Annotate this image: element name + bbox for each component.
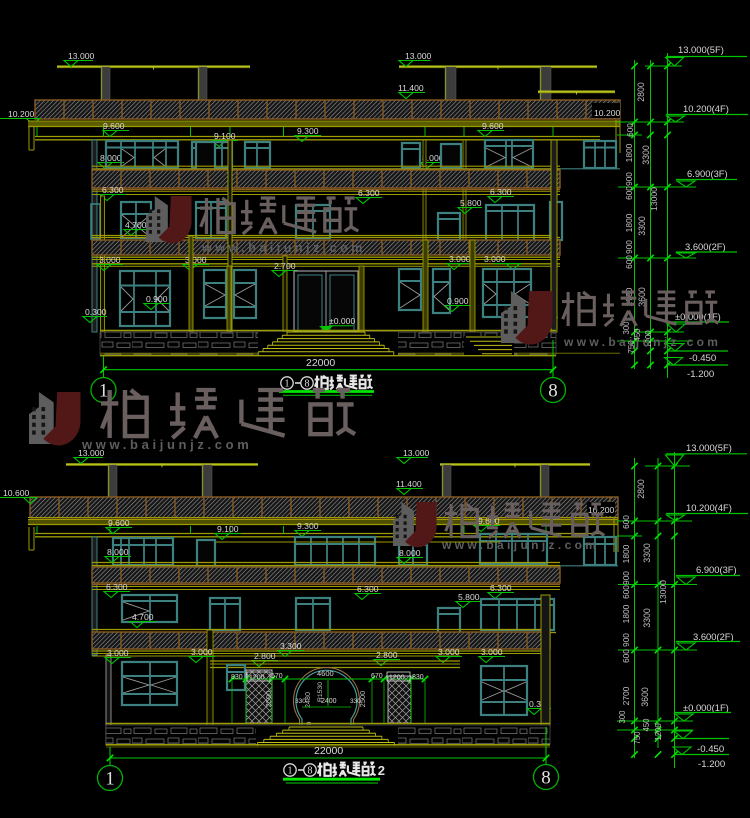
svg-text:6.900(3F): 6.900(3F) — [687, 168, 728, 179]
svg-text:11.400: 11.400 — [396, 479, 422, 489]
svg-text:0.900: 0.900 — [146, 294, 168, 304]
svg-text:9.600: 9.600 — [103, 121, 125, 131]
svg-text:0.900: 0.900 — [447, 296, 469, 306]
svg-text:±0.000: ±0.000 — [329, 316, 355, 326]
svg-text:1800: 1800 — [624, 213, 634, 232]
svg-text:600: 600 — [622, 515, 631, 529]
svg-text:8: 8 — [548, 381, 558, 402]
svg-text:2.800: 2.800 — [254, 651, 276, 661]
svg-text:13.000: 13.000 — [405, 51, 432, 61]
svg-text:2800: 2800 — [636, 479, 646, 499]
svg-text:330: 330 — [295, 698, 306, 705]
svg-text:10.200: 10.200 — [594, 108, 621, 118]
svg-text:3300: 3300 — [642, 543, 652, 563]
svg-text:9.600: 9.600 — [108, 518, 130, 528]
svg-text:4.700: 4.700 — [132, 612, 154, 622]
svg-text:-1.200: -1.200 — [687, 369, 714, 380]
svg-text:3.600(2F): 3.600(2F) — [685, 241, 726, 252]
svg-text:9.300: 9.300 — [297, 521, 319, 531]
svg-text:6.300: 6.300 — [490, 187, 512, 197]
svg-text:1200: 1200 — [389, 675, 405, 682]
svg-text:900: 900 — [622, 633, 631, 647]
svg-text:10.200(4F): 10.200(4F) — [683, 103, 729, 114]
svg-text:13.000: 13.000 — [403, 448, 430, 458]
svg-text:2700: 2700 — [621, 686, 631, 705]
svg-text:1200: 1200 — [249, 675, 265, 682]
svg-text:8: 8 — [305, 379, 310, 390]
svg-text:450: 450 — [642, 718, 651, 732]
svg-text:8: 8 — [308, 766, 313, 777]
svg-text:600: 600 — [626, 123, 635, 137]
svg-text:900: 900 — [625, 240, 634, 254]
svg-text:10.200: 10.200 — [8, 109, 35, 119]
svg-text:2400: 2400 — [321, 698, 337, 705]
svg-text:2800: 2800 — [636, 82, 646, 102]
svg-text:2500: 2500 — [264, 691, 273, 708]
svg-text:3.000: 3.000 — [484, 254, 506, 264]
svg-text:6.300: 6.300 — [490, 583, 512, 593]
svg-text:2: 2 — [378, 763, 385, 778]
svg-text:6.300: 6.300 — [357, 584, 379, 594]
svg-text:3.000: 3.000 — [107, 648, 129, 658]
svg-text:900: 900 — [625, 172, 634, 186]
svg-text:600: 600 — [622, 649, 631, 663]
svg-text:1: 1 — [105, 769, 115, 790]
svg-text:22000: 22000 — [306, 357, 335, 369]
svg-text:6.900(3F): 6.900(3F) — [696, 564, 737, 575]
svg-text:www.baijunjz.com: www.baijunjz.com — [563, 335, 721, 349]
svg-text:13.000(5F): 13.000(5F) — [678, 44, 724, 55]
svg-text:-1.200: -1.200 — [698, 759, 725, 770]
svg-text:8.000: 8.000 — [399, 548, 421, 558]
svg-text:www.baijunjz.com: www.baijunjz.com — [81, 437, 252, 452]
svg-text:1: 1 — [288, 766, 293, 777]
svg-text:6.300: 6.300 — [358, 188, 380, 198]
svg-text:2.700: 2.700 — [274, 261, 296, 271]
svg-text:www.baijunjz.com: www.baijunjz.com — [441, 538, 599, 552]
svg-text:5.800: 5.800 — [458, 592, 480, 602]
svg-text:3.000: 3.000 — [481, 647, 503, 657]
svg-text:3.000: 3.000 — [449, 254, 471, 264]
svg-text:600: 600 — [625, 186, 634, 200]
svg-text:8.000: 8.000 — [107, 547, 129, 557]
svg-text:8.000: 8.000 — [100, 153, 122, 163]
svg-text:1800: 1800 — [621, 604, 631, 623]
svg-text:4.700: 4.700 — [125, 220, 147, 230]
svg-text:3300: 3300 — [642, 608, 652, 628]
svg-text:9.100: 9.100 — [217, 524, 239, 534]
svg-text:10.200(4F): 10.200(4F) — [686, 502, 732, 513]
svg-text:3.600(2F): 3.600(2F) — [693, 631, 734, 642]
svg-text:8: 8 — [541, 768, 551, 789]
svg-text:1800: 1800 — [621, 544, 631, 563]
svg-text:6.300: 6.300 — [102, 185, 124, 195]
svg-text:670: 670 — [371, 673, 383, 680]
svg-text:3.300: 3.300 — [280, 641, 302, 651]
svg-text:0.300: 0.300 — [85, 307, 107, 317]
svg-text:3.000: 3.000 — [438, 647, 460, 657]
svg-text:9.300: 9.300 — [297, 126, 319, 136]
svg-text:750: 750 — [633, 731, 642, 745]
svg-text:3300: 3300 — [637, 216, 647, 236]
svg-text:1800: 1800 — [624, 143, 634, 162]
svg-text:830: 830 — [231, 674, 243, 681]
svg-text:-0.450: -0.450 — [689, 353, 716, 364]
svg-text:670: 670 — [271, 673, 283, 680]
svg-text:www.baijunjz.com: www.baijunjz.com — [201, 241, 366, 255]
svg-text:6.300: 6.300 — [106, 582, 128, 592]
svg-text:1: 1 — [99, 381, 109, 402]
svg-text:3600: 3600 — [640, 687, 650, 707]
svg-text:1200: 1200 — [654, 723, 663, 741]
svg-text:9.600: 9.600 — [482, 121, 504, 131]
svg-text:3.000: 3.000 — [185, 255, 207, 265]
svg-text:600: 600 — [625, 255, 634, 269]
svg-text:1: 1 — [285, 379, 290, 390]
svg-text:4600: 4600 — [317, 669, 334, 678]
svg-text:13000: 13000 — [649, 187, 659, 211]
svg-text:3.000: 3.000 — [99, 255, 121, 265]
svg-text:5.800: 5.800 — [460, 198, 482, 208]
svg-text:13.000: 13.000 — [68, 51, 95, 61]
svg-text:11.400: 11.400 — [398, 83, 424, 93]
svg-text:10.600: 10.600 — [3, 488, 30, 498]
svg-text:-0.450: -0.450 — [697, 744, 724, 755]
svg-text:600: 600 — [622, 585, 631, 599]
svg-text:2.800: 2.800 — [376, 650, 398, 660]
svg-text:830: 830 — [412, 674, 424, 681]
svg-text:900: 900 — [622, 571, 631, 585]
svg-text:330: 330 — [350, 698, 361, 705]
svg-text:±0.000(1F): ±0.000(1F) — [683, 702, 729, 713]
svg-text:22000: 22000 — [314, 745, 343, 757]
svg-text:3.000: 3.000 — [191, 647, 213, 657]
svg-text:3300: 3300 — [641, 145, 651, 165]
svg-text:300: 300 — [618, 710, 627, 724]
svg-text:13000: 13000 — [658, 580, 668, 604]
svg-text:13.000(5F): 13.000(5F) — [686, 442, 732, 453]
